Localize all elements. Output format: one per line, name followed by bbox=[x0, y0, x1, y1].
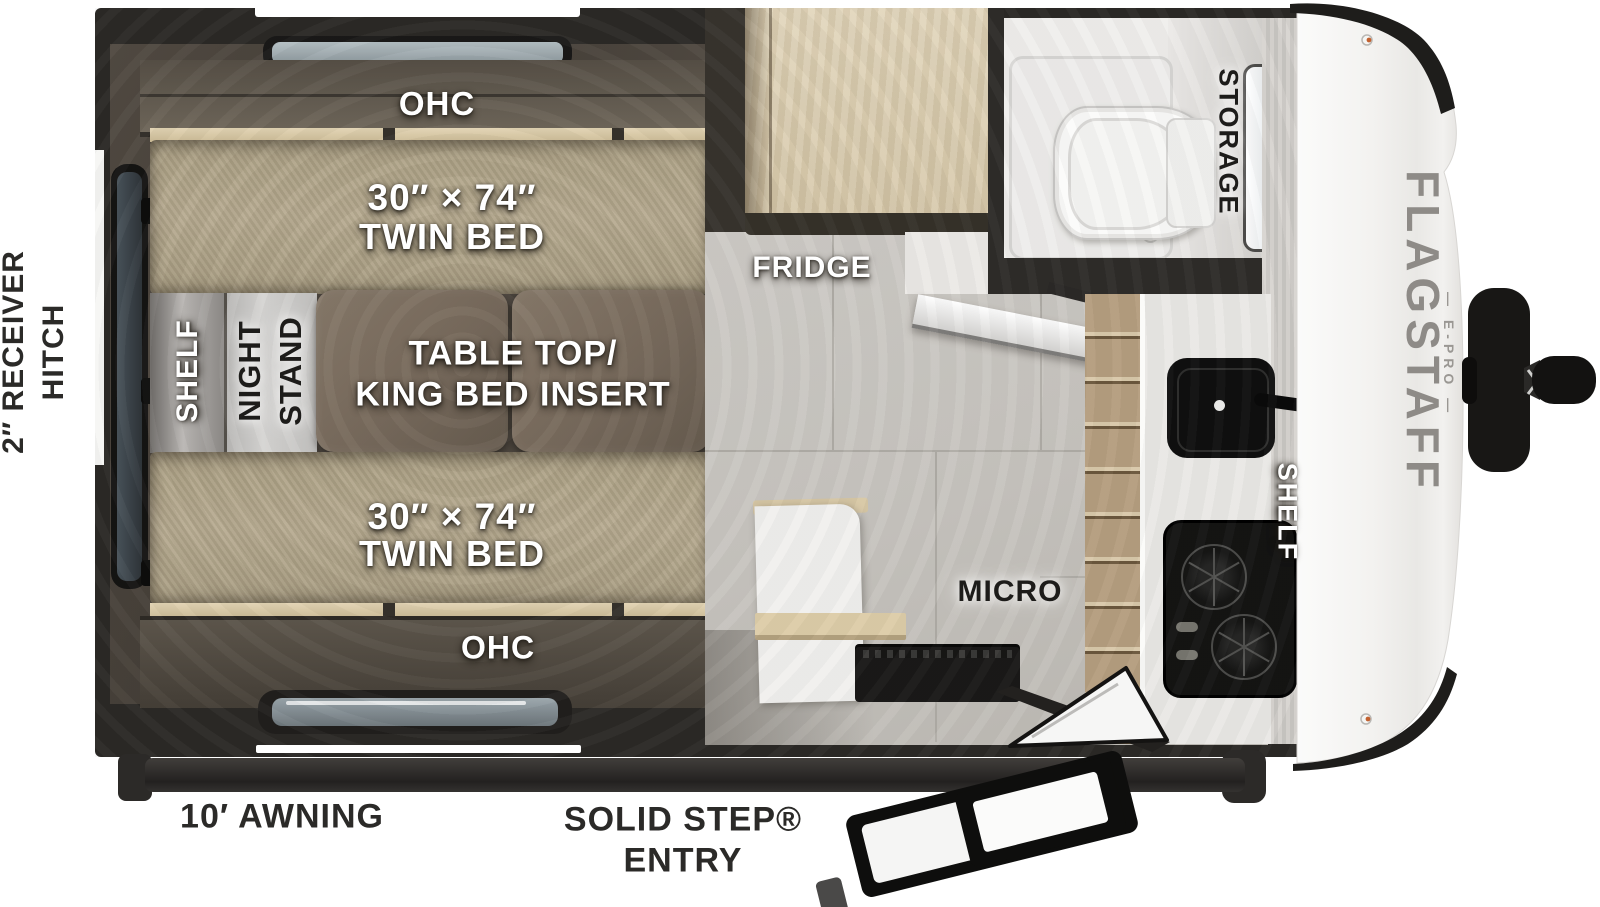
cooktop-knob bbox=[1176, 622, 1198, 632]
marker-light-top bbox=[1362, 35, 1372, 45]
seat-shelf bbox=[755, 613, 906, 640]
bathroom-wall-left bbox=[988, 8, 1004, 294]
bottom-trim-bar bbox=[256, 745, 581, 753]
ohc-bottom-label: OHC bbox=[461, 630, 535, 667]
bed-rail-bottom bbox=[150, 603, 710, 617]
propane-tank bbox=[1468, 288, 1530, 472]
shelf-right-label: SHELF bbox=[1272, 463, 1303, 562]
bed-bottom-dims: 30″ × 74″ bbox=[368, 496, 537, 538]
kitchen-cabinets bbox=[1085, 294, 1140, 744]
counter-sliver bbox=[905, 232, 990, 294]
burner-icon bbox=[1211, 614, 1277, 680]
storage-label: STORAGE bbox=[1213, 68, 1244, 215]
receiver-hitch-line1: 2″ RECEIVER bbox=[0, 250, 30, 454]
sink-basin bbox=[1177, 368, 1269, 452]
dinette-seat bbox=[754, 504, 864, 704]
night-stand-line2: STAND bbox=[273, 316, 308, 425]
receiver-hitch-line2: HITCH bbox=[37, 304, 70, 401]
sink-drain bbox=[1214, 400, 1225, 411]
bed-top-name: TWIN BED bbox=[359, 216, 545, 258]
marker-light-bottom bbox=[1361, 714, 1371, 724]
rail-notch bbox=[612, 603, 624, 617]
brand-sub-logo: — E-PRO — bbox=[1441, 292, 1457, 417]
top-trim-bar bbox=[255, 4, 580, 17]
awning-roller bbox=[145, 758, 1245, 792]
floorplan-canvas: 2″ RECEIVER HITCH SHELF NIGHT STAND OHC … bbox=[0, 0, 1600, 907]
marker-light-top-lens bbox=[1367, 38, 1372, 43]
awning-label: 10′ AWNING bbox=[180, 798, 384, 837]
night-stand-label: NIGHT STAND bbox=[229, 316, 311, 425]
fridge-seam bbox=[769, 8, 772, 215]
toilet-lid bbox=[1166, 118, 1216, 228]
tongue-jack bbox=[1462, 357, 1477, 404]
wardrobe-shadow bbox=[705, 8, 747, 236]
coupler-highlight bbox=[1528, 370, 1537, 394]
rail-notch bbox=[383, 603, 395, 617]
bed-top-dims: 30″ × 74″ bbox=[368, 177, 537, 219]
rear-window-highlight bbox=[95, 150, 104, 465]
burner-icon bbox=[1181, 544, 1247, 610]
table-label-line1: TABLE TOP/ bbox=[409, 335, 618, 374]
microwave-unit bbox=[855, 647, 1020, 702]
shelf-left-label: SHELF bbox=[171, 319, 205, 422]
fridge-cabinet bbox=[745, 8, 988, 215]
entry-label-line2: ENTRY bbox=[624, 842, 743, 881]
receiver-hitch-label: 2″ RECEIVER HITCH bbox=[0, 250, 74, 454]
entry-label-line1: SOLID STEP® bbox=[564, 801, 802, 840]
coupler-neck bbox=[1524, 360, 1540, 400]
night-stand-line1: NIGHT bbox=[232, 320, 267, 421]
marker-light-bottom-lens bbox=[1366, 717, 1371, 722]
rear-window-glass bbox=[117, 172, 142, 581]
bottom-window-glint bbox=[286, 701, 526, 705]
fridge-shading bbox=[745, 8, 771, 215]
hitch-coupler bbox=[1532, 356, 1596, 404]
fridge-label: FRIDGE bbox=[752, 251, 871, 285]
micro-label: MICRO bbox=[958, 575, 1063, 609]
ohc-top-label: OHC bbox=[399, 85, 475, 123]
bed-bottom-name: TWIN BED bbox=[359, 533, 545, 575]
cooktop-knob bbox=[1176, 650, 1198, 660]
table-label-line2: KING BED INSERT bbox=[355, 376, 670, 415]
